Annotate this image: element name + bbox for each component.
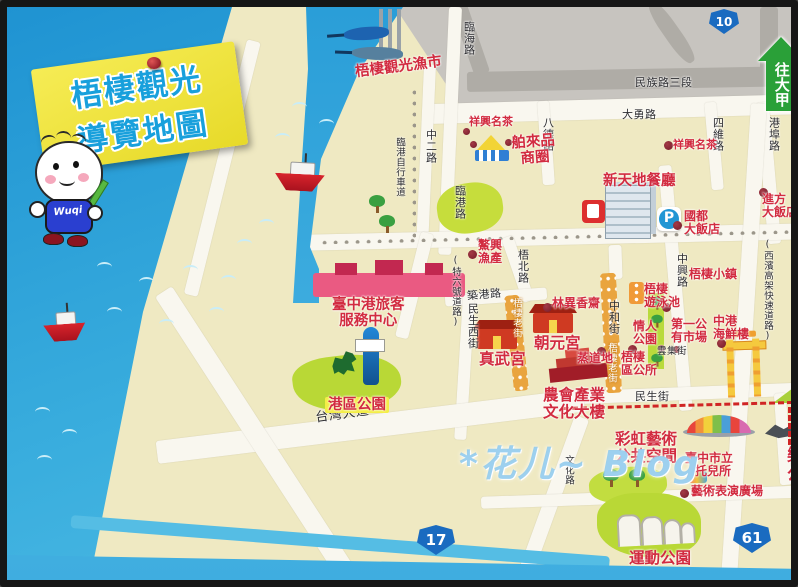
gas-station-icon — [582, 200, 605, 223]
road-label-dayong: 大勇路 — [622, 106, 657, 122]
wave-icon — [209, 307, 224, 317]
sports-gym-icon — [616, 505, 694, 547]
road-label-yunji: 雲集街 — [657, 343, 687, 357]
poi-wuqi-town: 梧棲小鎮 — [689, 268, 737, 281]
wave-icon — [259, 219, 274, 229]
poi-dot — [673, 221, 682, 230]
terminal-block-icon — [375, 260, 403, 275]
poi-dot — [680, 489, 689, 498]
poi-dot — [664, 141, 673, 150]
road-label-minzu: 民族路三段 — [635, 74, 693, 90]
wave-icon — [37, 455, 52, 465]
tour-route-dashed — [788, 407, 791, 445]
poi-aoxing: 鰲興漁產 — [478, 239, 502, 266]
poi-farmers-assoc: 農會產業文化大樓 — [543, 387, 605, 422]
swimming-pool-icon — [629, 282, 644, 304]
poi-xiangxing-tea-2: 祥興名茶 — [673, 139, 717, 151]
xintiandi-building-icon — [605, 185, 651, 239]
terminal-block-icon — [335, 263, 357, 275]
poi-dot — [470, 141, 477, 148]
corner-green-2 — [790, 459, 798, 489]
harbor-monument-icon — [363, 327, 379, 385]
highway-10-shield: 10 — [709, 9, 739, 34]
wave-icon — [221, 275, 236, 285]
poi-first-market: 第一公有市場 — [671, 318, 707, 345]
minzu-road-shape — [467, 66, 798, 92]
bolai-tent-icon — [477, 135, 505, 150]
poi-passenger-center: 臺中港旅客服務中心 — [332, 297, 405, 329]
bike-path-dots-1 — [409, 87, 416, 243]
passenger-terminal-icon — [313, 273, 465, 297]
poi-seafood: 中港海鮮樓 — [713, 315, 749, 342]
road-label-old-street-west: 梧棲老街 — [511, 298, 521, 338]
poi-zhenwu-temple: 真武宮 — [479, 351, 526, 368]
poi-lovers-park: 情人公園 — [633, 320, 657, 347]
wave-icon — [292, 102, 307, 112]
poi-jinfang-hotel: 進方大飯店 — [762, 193, 798, 220]
ship-icon — [42, 302, 86, 341]
road-label-minsheng-w: 民生西街 — [467, 303, 479, 349]
road-label-te6: (特六號道路) — [450, 255, 460, 328]
poi-zhengdaodi: 蒸道地 — [577, 352, 613, 365]
road-label-linhai: 臨海路 — [463, 21, 475, 56]
tree-icon — [369, 195, 385, 214]
road-label-bike-path: 臨港自行車道 — [394, 137, 404, 197]
wave-icon — [35, 407, 50, 417]
road-label-lingang: 臨港路 — [454, 185, 466, 220]
wave-icon — [107, 307, 122, 317]
wave-icon — [62, 429, 77, 439]
poi-dot — [463, 128, 470, 135]
poi-le-park-clipped: 樂公 — [787, 447, 798, 485]
wave-icon — [159, 319, 174, 329]
poi-bolai: 舶來品商圈 — [511, 133, 557, 168]
poi-chaoyuan-temple: 朝元宮 — [534, 335, 581, 352]
poi-dot — [543, 303, 552, 312]
poi-harbor-park: 港區公園 — [325, 397, 389, 413]
poi-guodu-hotel: 國都大飯店 — [684, 210, 720, 237]
road-label-gangbu: 港埠路 — [768, 117, 780, 152]
tree-icon — [379, 215, 395, 234]
poi-sports-park: 運動公園 — [629, 550, 691, 567]
gray-road-3 — [644, 0, 698, 67]
wave-icon — [319, 119, 334, 129]
wave-icon — [275, 133, 290, 143]
poi-xintiandi: 新天地餐廳 — [603, 173, 676, 189]
photo-watermark: *花儿~ Blog — [459, 435, 701, 487]
chaoyuan-temple-icon — [533, 313, 573, 333]
poi-linyixiang: 林異香齋 — [552, 297, 600, 310]
poi-xiangxing-tea-1: 祥興名茶 — [469, 116, 513, 128]
wuqi-mascot: Wuqi — [15, 139, 135, 257]
road-label-wubei: 梧北路 — [517, 249, 529, 284]
poi-dot — [468, 250, 477, 259]
road-label-zhonghe: 中和街 — [608, 300, 620, 335]
road-label-xibin: (西濱高架快速道路) — [762, 239, 772, 342]
dajia-direction-arrow: 往大甲 — [758, 37, 798, 111]
wave-icon — [237, 239, 252, 249]
road-label-minsheng: 民生街 — [635, 388, 670, 404]
wave-icon — [183, 265, 198, 275]
wuqi-tourist-map: P 民族路三段 大勇路 臨海路 — [0, 0, 798, 587]
terminal-block-icon — [425, 263, 443, 275]
poi-district-office: 梧棲區公所 — [621, 351, 657, 378]
bolai-market-icon — [475, 150, 509, 161]
ship-icon — [274, 152, 326, 195]
road-label-zhong2: 中二路 — [425, 129, 437, 164]
wave-icon — [139, 277, 154, 287]
pin-icon — [147, 57, 161, 69]
wave-icon — [97, 262, 112, 272]
poi-art-plaza: 藝術表演廣場 — [691, 485, 763, 498]
monument-sign-icon — [355, 339, 385, 352]
poi-pool: 梧棲遊泳池 — [644, 283, 680, 310]
road-label-zhugang: 築港路 — [466, 285, 502, 304]
